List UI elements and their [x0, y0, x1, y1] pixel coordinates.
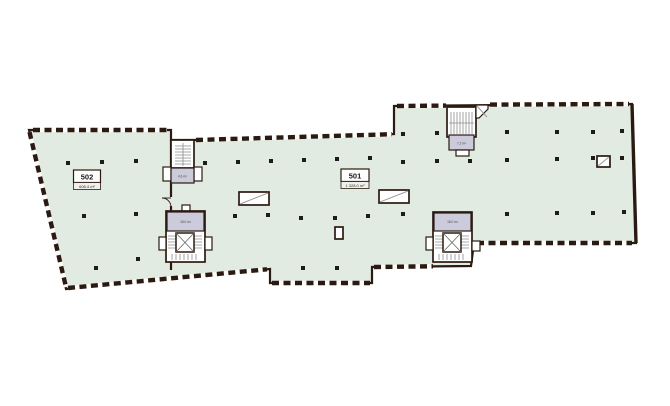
- unit-502-number: 502: [81, 173, 94, 182]
- unit-501-area: 1 328.0 m²: [345, 183, 365, 188]
- unit-502-area: 608.4 m²: [79, 184, 95, 189]
- unit-501-label[interactable]: 501 1 328.0 m²: [341, 169, 369, 189]
- unit-501-region[interactable]: [173, 106, 634, 281]
- floor-plan-drawing: 4.6 m² 18.0 m² 7.2 m² 18.0 m²: [0, 0, 670, 406]
- floor-plan-canvas: 4.6 m² 18.0 m² 7.2 m² 18.0 m²: [0, 0, 670, 406]
- unit-502-label[interactable]: 502 608.4 m²: [74, 170, 101, 190]
- unit-502-region[interactable]: [31, 132, 169, 287]
- unit-501-number: 501: [349, 172, 362, 181]
